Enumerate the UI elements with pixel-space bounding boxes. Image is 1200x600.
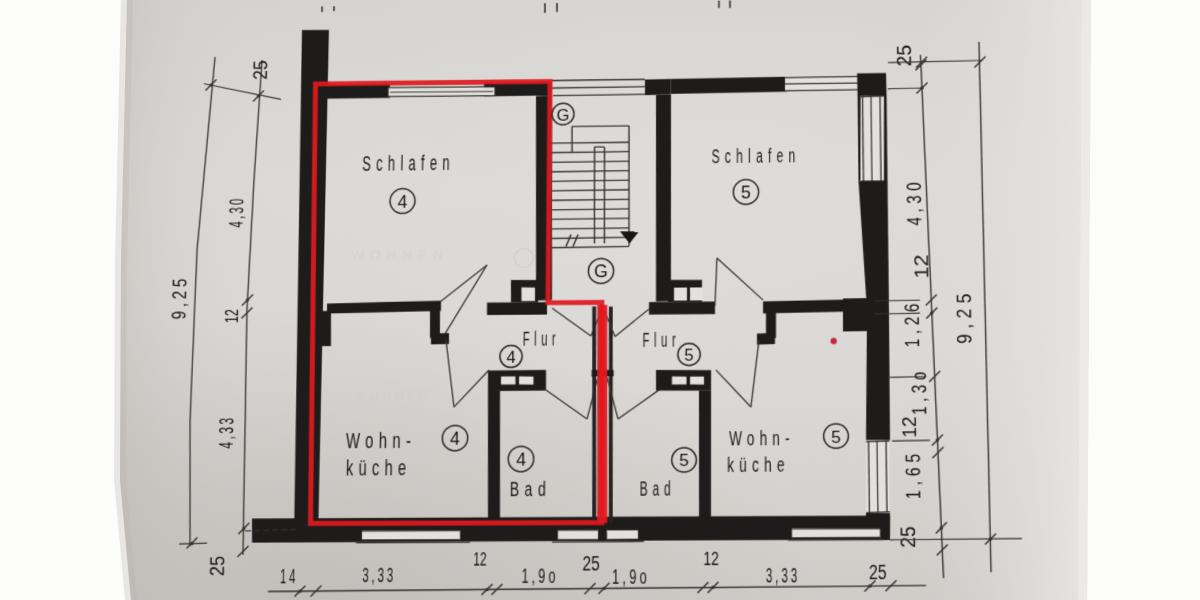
- svg-text:WOHNEN: WOHNEN: [351, 246, 449, 262]
- svg-text:5: 5: [741, 183, 751, 203]
- svg-text:1,9o: 1,9o: [612, 566, 650, 588]
- svg-text:9,25: 9,25: [954, 288, 977, 344]
- svg-text:25: 25: [250, 60, 272, 80]
- svg-text:1,3o: 1,3o: [909, 367, 932, 415]
- svg-text:1,26: 1,26: [902, 299, 925, 348]
- svg-text:Schlafen: Schlafen: [712, 145, 801, 169]
- svg-text:5: 5: [684, 347, 694, 365]
- svg-text:3,33: 3,33: [766, 566, 800, 589]
- svg-text:Flur: Flur: [523, 328, 561, 350]
- svg-text:G: G: [557, 107, 570, 124]
- svg-text:WOHNEN: WOHNEN: [355, 390, 431, 403]
- svg-text:25: 25: [869, 562, 887, 585]
- svg-text:4: 4: [450, 429, 460, 449]
- svg-text:Bad: Bad: [640, 479, 676, 501]
- svg-text:4: 4: [516, 450, 526, 470]
- svg-text:G: G: [594, 262, 608, 282]
- svg-text:5: 5: [679, 452, 689, 471]
- svg-text:WOHNEN: WOHNEN: [345, 498, 429, 513]
- svg-text:Wohn-: Wohn-: [346, 429, 417, 453]
- svg-text:1,9o: 1,9o: [522, 565, 559, 587]
- svg-text:5: 5: [831, 428, 841, 447]
- svg-text:25: 25: [894, 45, 916, 67]
- svg-text:12: 12: [473, 548, 487, 570]
- svg-text:14: 14: [280, 567, 299, 589]
- svg-text:Wohn-: Wohn-: [729, 427, 795, 451]
- svg-text:4: 4: [398, 192, 408, 212]
- svg-text:12: 12: [703, 547, 718, 569]
- svg-text:12: 12: [220, 309, 242, 323]
- svg-text:25: 25: [898, 526, 921, 548]
- svg-text:4,30: 4,30: [226, 196, 248, 228]
- svg-text:küche: küche: [727, 453, 790, 477]
- svg-text:12: 12: [910, 254, 933, 278]
- svg-text:12: 12: [898, 416, 921, 438]
- svg-text:4: 4: [506, 349, 516, 367]
- svg-text:Bad: Bad: [510, 480, 552, 502]
- svg-text:3,33: 3,33: [362, 565, 396, 587]
- svg-text:Flur: Flur: [643, 329, 681, 351]
- svg-text:9,25: 9,25: [169, 275, 192, 320]
- svg-text:küche: küche: [346, 457, 412, 481]
- svg-text:25: 25: [207, 556, 230, 576]
- svg-text:Schlafen: Schlafen: [362, 152, 455, 176]
- svg-text:4,30: 4,30: [904, 178, 927, 226]
- svg-text:25: 25: [582, 553, 600, 575]
- svg-text:4,33: 4,33: [216, 415, 239, 448]
- svg-text:1,65: 1,65: [903, 449, 926, 499]
